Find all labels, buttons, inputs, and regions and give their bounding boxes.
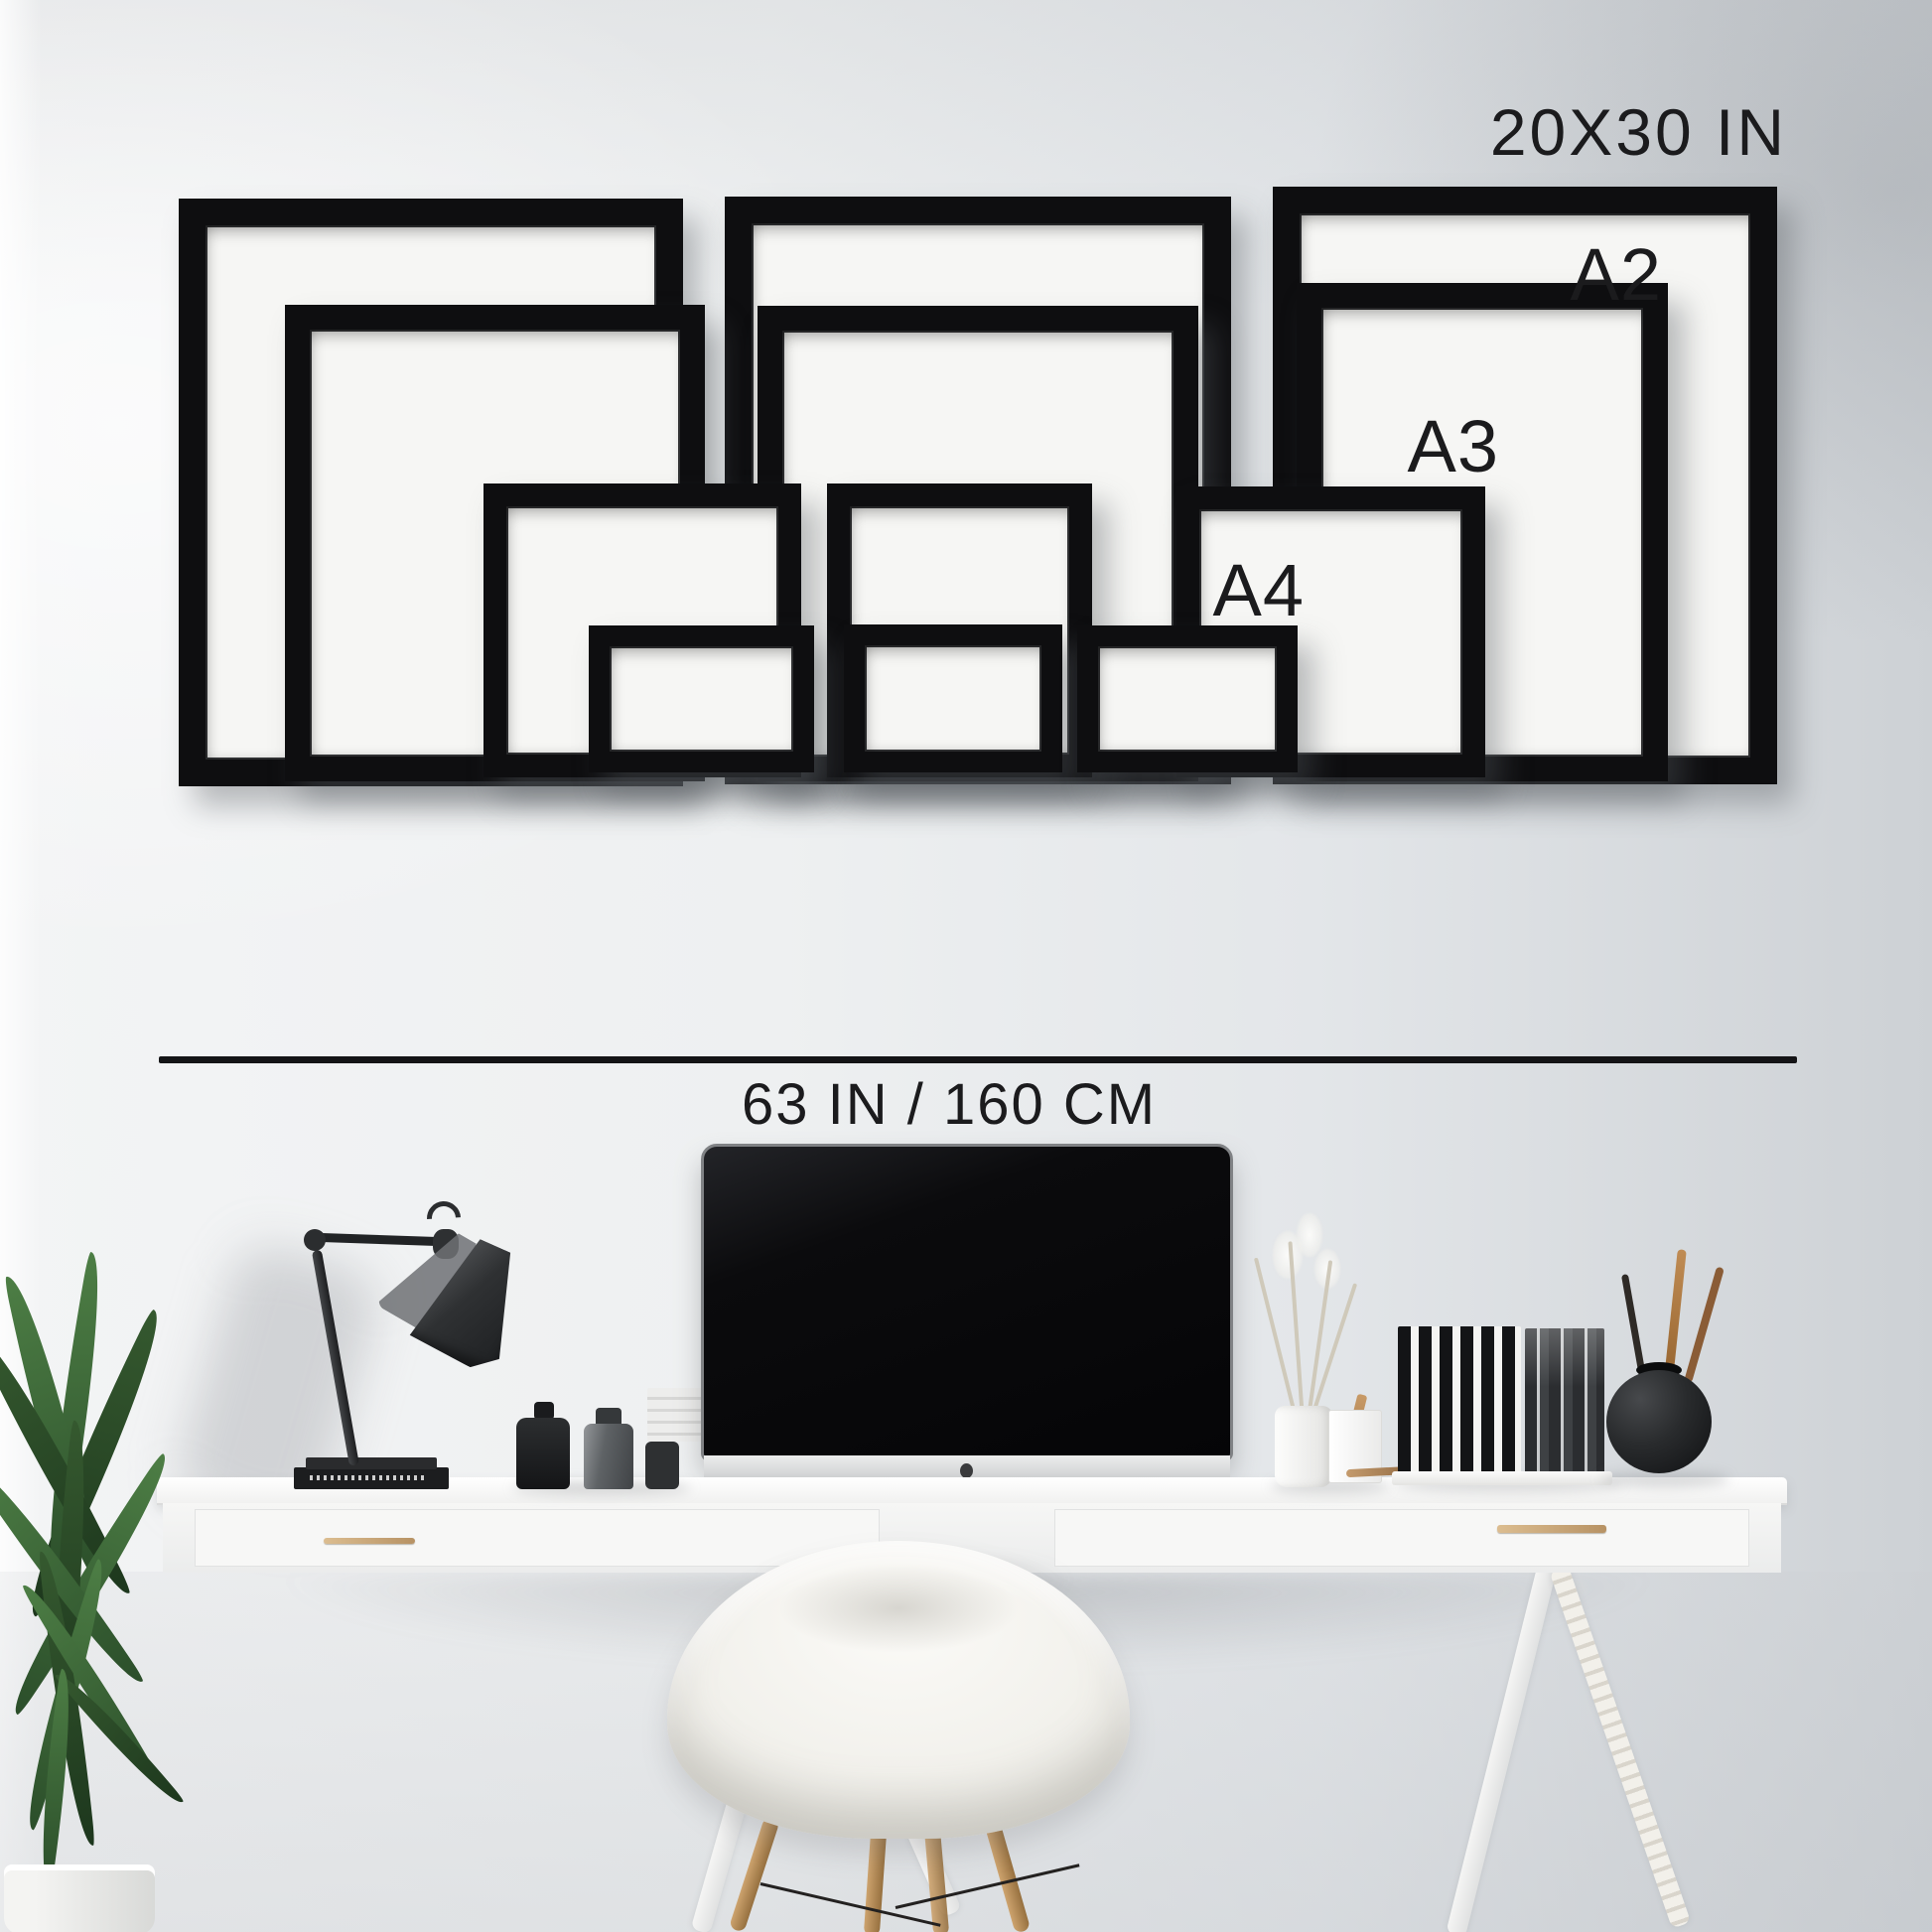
drawer-handle-left xyxy=(324,1538,415,1544)
size-a2-label: A2 xyxy=(1570,238,1662,312)
lamp-joint xyxy=(304,1229,326,1251)
plant-pot xyxy=(4,1864,155,1932)
black-bottle xyxy=(516,1418,570,1489)
stick xyxy=(1684,1267,1725,1384)
shadow xyxy=(1600,1471,1729,1487)
paper-stack xyxy=(647,1388,703,1442)
monitor-logo-icon xyxy=(960,1463,973,1478)
stick xyxy=(1664,1249,1687,1380)
measurement-label: 63 IN / 160 CM xyxy=(742,1076,1157,1134)
measurement-line xyxy=(159,1056,1797,1063)
striped-file-rack xyxy=(1525,1328,1604,1475)
imac-monitor-screen xyxy=(701,1144,1233,1461)
frame-mat xyxy=(1098,646,1277,752)
chair-seat-shading xyxy=(740,1555,1057,1674)
book-spine-text xyxy=(310,1475,427,1480)
drawer-right xyxy=(1054,1509,1749,1567)
size-a4-label: A4 xyxy=(1212,554,1305,627)
lamp-arm-upper xyxy=(310,1233,449,1247)
size-20x30-label: 20X30 IN xyxy=(1490,99,1787,165)
dried-twigs-vase xyxy=(1275,1406,1332,1487)
small-black-jar xyxy=(645,1442,679,1489)
frame-a4-center xyxy=(844,624,1062,772)
dried-bloom xyxy=(1297,1213,1322,1257)
frame-a4-left xyxy=(589,625,814,772)
file-rack-base xyxy=(1392,1471,1612,1485)
black-file-rack xyxy=(1398,1326,1521,1475)
drawer-handle-right xyxy=(1497,1525,1606,1533)
drawer-left xyxy=(195,1509,880,1567)
size-a3-label: A3 xyxy=(1407,410,1499,483)
size-guide-photo: 20X30 INA2A3A4 63 IN / 160 CM xyxy=(0,0,1932,1932)
round-black-vase xyxy=(1606,1370,1712,1473)
frame-mat xyxy=(610,646,793,752)
frame-a4-right xyxy=(1077,625,1298,772)
gray-jar xyxy=(584,1424,633,1489)
book-stack xyxy=(306,1457,437,1469)
frame-mat xyxy=(865,645,1041,752)
